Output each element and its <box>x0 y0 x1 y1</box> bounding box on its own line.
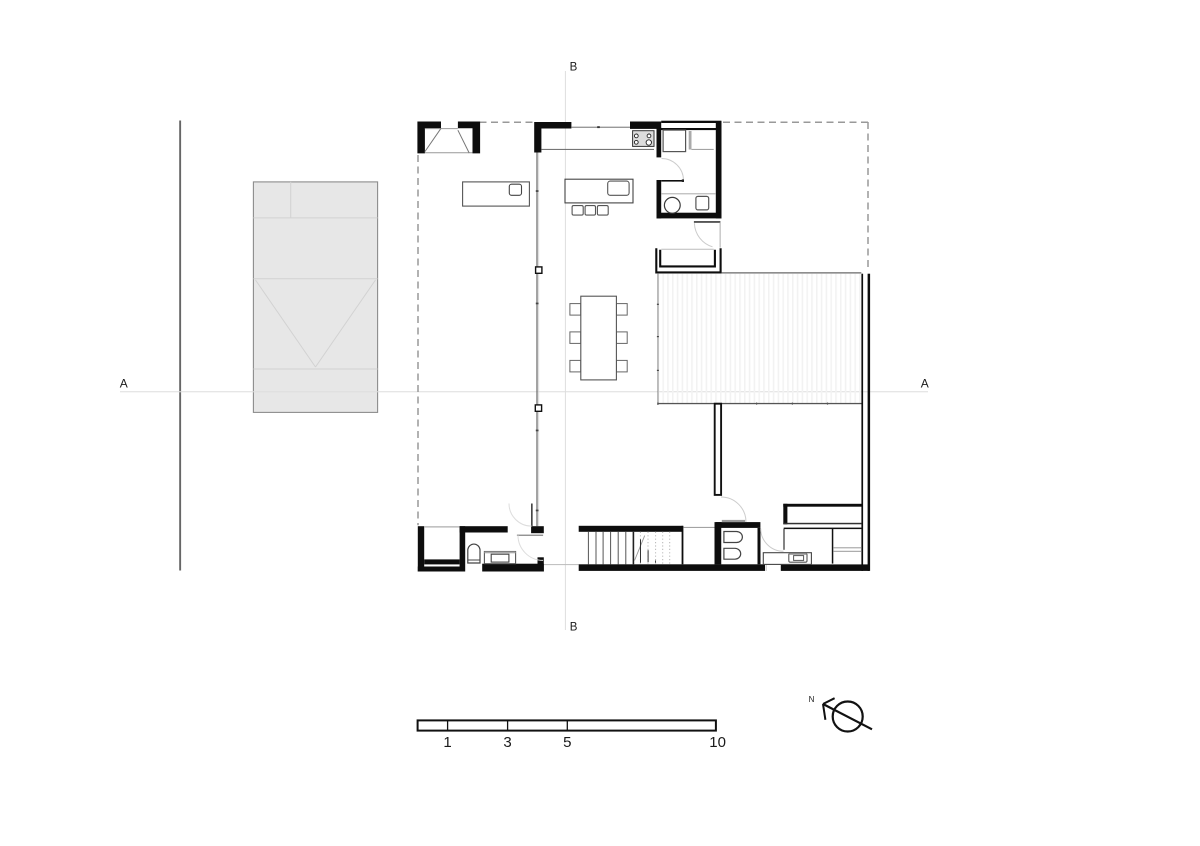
svg-text:A: A <box>921 377 929 391</box>
svg-text:1: 1 <box>443 734 451 751</box>
svg-text:3: 3 <box>503 734 511 751</box>
svg-text:B: B <box>570 62 578 74</box>
svg-text:5: 5 <box>563 734 571 751</box>
svg-text:B: B <box>570 621 578 633</box>
svg-text:A: A <box>120 377 128 391</box>
svg-text:10: 10 <box>709 734 726 751</box>
svg-text:N: N <box>809 695 815 704</box>
